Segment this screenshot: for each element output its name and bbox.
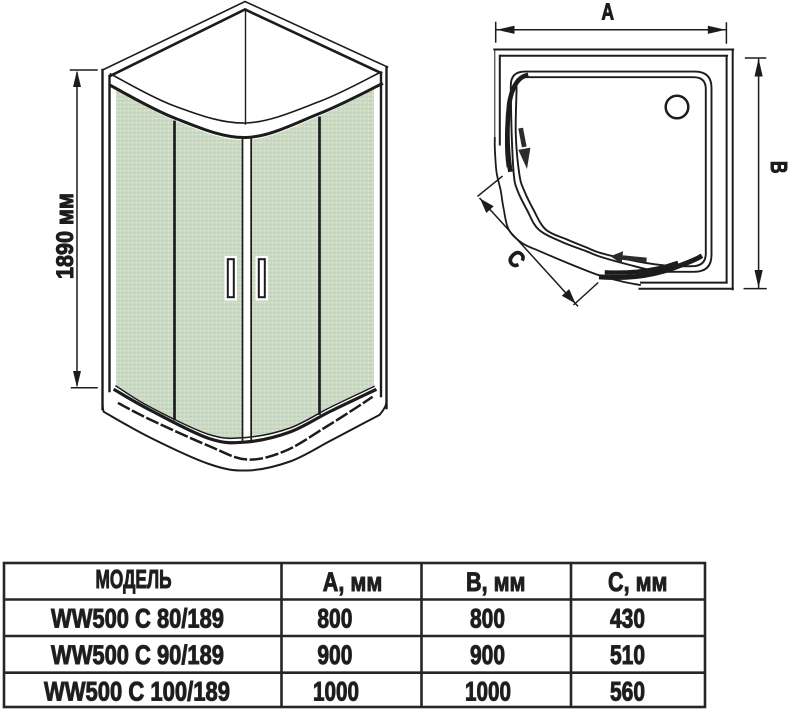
svg-text:A: A [602,0,615,25]
svg-text:WW500 C 100/189: WW500 C 100/189 [44,677,230,707]
svg-text:510: 510 [610,640,645,670]
svg-text:430: 430 [610,604,645,634]
svg-text:А, мм: А, мм [323,567,383,597]
svg-text:560: 560 [610,677,645,707]
svg-text:С, мм: С, мм [608,567,668,597]
svg-text:WW500 C 90/189: WW500 C 90/189 [51,640,224,670]
svg-text:1000: 1000 [465,677,511,707]
svg-text:900: 900 [317,640,352,670]
svg-text:B: B [766,161,788,174]
svg-text:1890 мм: 1890 мм [52,193,79,279]
svg-text:В, мм: В, мм [466,567,526,597]
svg-text:900: 900 [470,640,505,670]
svg-text:МОДЕЛЬ: МОДЕЛЬ [96,566,172,594]
svg-text:WW500 C 80/189: WW500 C 80/189 [51,604,224,634]
svg-text:800: 800 [317,604,352,634]
svg-text:800: 800 [470,604,505,634]
svg-text:1000: 1000 [313,677,359,707]
